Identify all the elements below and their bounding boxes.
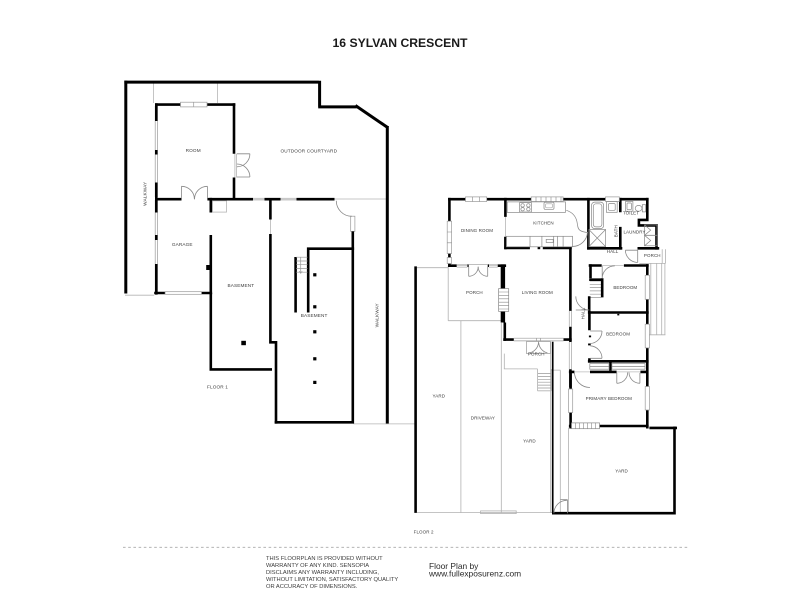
svg-text:YARD: YARD <box>523 438 536 443</box>
svg-text:KITCHEN: KITCHEN <box>533 220 553 225</box>
svg-text:WARRANTY OF ANY KIND. SENSOPIA: WARRANTY OF ANY KIND. SENSOPIA <box>266 563 369 569</box>
svg-text:LAUNDRY: LAUNDRY <box>623 229 645 234</box>
svg-text:www.fullexposurenz.com: www.fullexposurenz.com <box>428 569 521 579</box>
svg-text:THIS FLOORPLAN IS PROVIDED WIT: THIS FLOORPLAN IS PROVIDED WITHOUT <box>266 556 383 562</box>
svg-text:LIVING ROOM: LIVING ROOM <box>522 290 553 295</box>
svg-text:YARD: YARD <box>615 469 628 474</box>
svg-text:PORCH: PORCH <box>528 351 545 356</box>
svg-text:HALL: HALL <box>607 249 619 254</box>
svg-text:YARD: YARD <box>433 394 446 399</box>
svg-text:DINING ROOM: DINING ROOM <box>461 228 493 233</box>
svg-text:DRIVEWAY: DRIVEWAY <box>471 416 495 421</box>
svg-text:BEDROOM: BEDROOM <box>613 285 637 290</box>
svg-text:FLOOR 2: FLOOR 2 <box>414 530 434 535</box>
svg-text:PORCH: PORCH <box>644 253 661 258</box>
svg-text:OR ACCURACY OF DIMENSIONS.: OR ACCURACY OF DIMENSIONS. <box>266 584 358 590</box>
svg-text:BEDROOM: BEDROOM <box>606 332 630 337</box>
svg-text:WITHOUT LIMITATION, SATISFACTO: WITHOUT LIMITATION, SATISFACTORY QUALITY <box>266 577 398 583</box>
svg-text:PRIMARY BEDROOM: PRIMARY BEDROOM <box>586 396 632 401</box>
svg-text:WALKWAY: WALKWAY <box>374 302 379 327</box>
svg-text:TOILET: TOILET <box>623 211 639 216</box>
svg-text:WALKWAY: WALKWAY <box>143 181 148 206</box>
svg-text:OUTDOOR COURTYARD: OUTDOOR COURTYARD <box>281 149 338 154</box>
svg-text:16 SYLVAN CRESCENT: 16 SYLVAN CRESCENT <box>333 36 469 50</box>
svg-text:ROOM: ROOM <box>186 148 201 153</box>
svg-text:FLOOR 1: FLOOR 1 <box>207 385 228 390</box>
svg-text:GARAGE: GARAGE <box>172 242 193 247</box>
svg-text:BASEMENT: BASEMENT <box>228 283 255 288</box>
svg-text:BASEMENT: BASEMENT <box>301 313 328 318</box>
svg-text:HALL: HALL <box>580 307 585 319</box>
svg-text:DISCLAIMS ANY WARRANTY INCLUDI: DISCLAIMS ANY WARRANTY INCLUDING, <box>266 570 379 576</box>
svg-text:PORCH: PORCH <box>466 290 483 295</box>
svg-text:BATH: BATH <box>614 225 619 237</box>
